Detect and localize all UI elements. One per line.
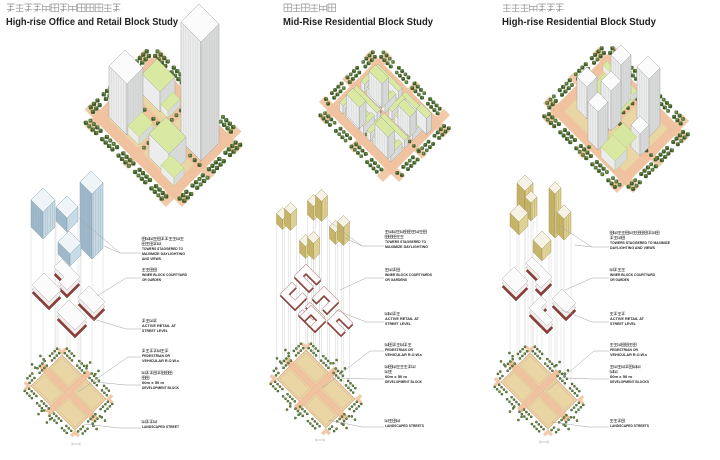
- svg-text:OR GARDEN: OR GARDEN: [610, 277, 629, 282]
- svg-text:DAYLIGHTING AND VIEWS: DAYLIGHTING AND VIEWS: [610, 245, 655, 250]
- svg-text:STREET LEVEL: STREET LEVEL: [142, 328, 168, 333]
- svg-text:DEVELOPMENT BLOCKS: DEVELOPMENT BLOCKS: [610, 379, 649, 384]
- svg-text:LANDSCAPED STREET: LANDSCAPED STREET: [142, 424, 179, 429]
- svg-text:STREET LEVEL: STREET LEVEL: [610, 321, 636, 326]
- svg-text:VEHICULAR R.O.W.s: VEHICULAR R.O.W.s: [610, 352, 648, 357]
- svg-text:DEVELOPMENT BLOCK: DEVELOPMENT BLOCK: [142, 385, 179, 390]
- svg-text:VEHICULAR R.O.W.s: VEHICULAR R.O.W.s: [385, 352, 423, 357]
- svg-text:LANDSCAPED STREETS: LANDSCAPED STREETS: [610, 423, 649, 428]
- svg-text:OR GARDEN: OR GARDEN: [142, 277, 161, 282]
- svg-text:LANDSCAPED STREETS: LANDSCAPED STREETS: [385, 423, 424, 428]
- svg-text:AND VIEWS: AND VIEWS: [142, 256, 161, 261]
- svg-text:VEHICULAR R.O.W.s: VEHICULAR R.O.W.s: [142, 358, 180, 363]
- svg-text:OR GARDENS: OR GARDENS: [385, 277, 407, 282]
- svg-text:MAXIMIZE DAYLIGHTING: MAXIMIZE DAYLIGHTING: [385, 244, 428, 249]
- svg-text:High-rise Residential Block St: High-rise Residential Block Study: [502, 17, 656, 28]
- svg-text:STREET LEVEL: STREET LEVEL: [385, 321, 411, 326]
- svg-text:Mid-Rise Residential Block Stu: Mid-Rise Residential Block Study: [283, 17, 433, 28]
- svg-text:DEVELOPMENT BLOCK: DEVELOPMENT BLOCK: [385, 379, 422, 384]
- svg-text:High-rise Office and Retail Bl: High-rise Office and Retail Block Study: [6, 17, 178, 28]
